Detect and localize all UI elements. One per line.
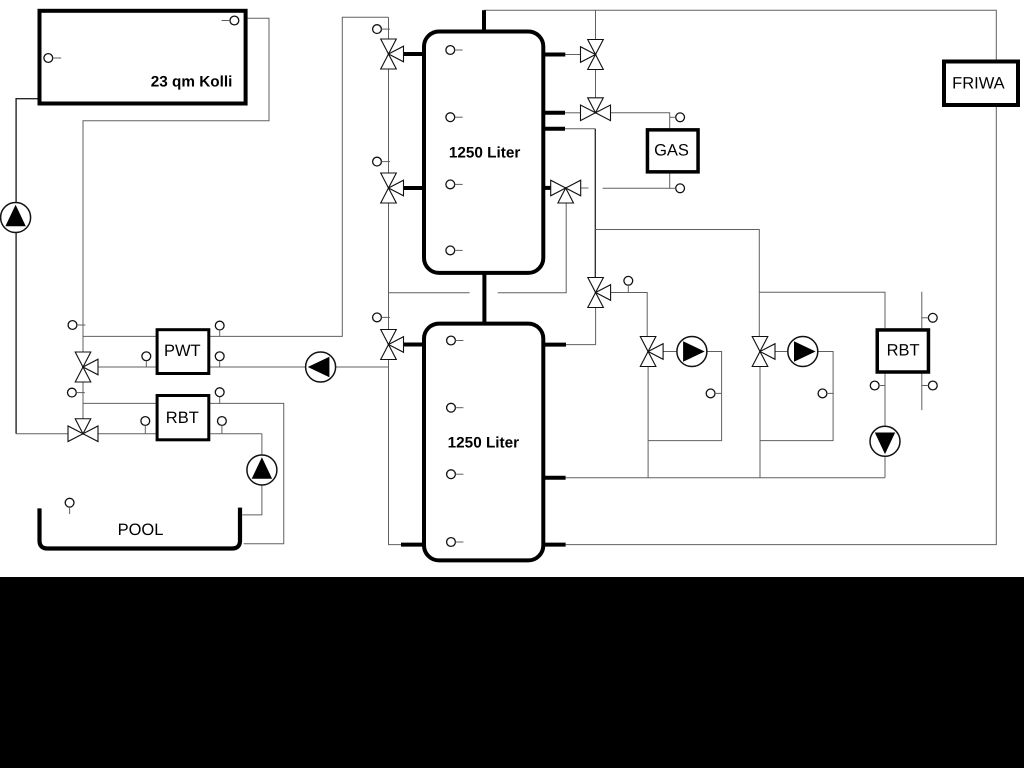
svg-text:1250 Liter: 1250 Liter: [448, 434, 519, 451]
svg-text:POOL: POOL: [118, 521, 164, 539]
svg-text:23 qm Kolli: 23 qm Kolli: [151, 74, 233, 91]
svg-text:1250 Liter: 1250 Liter: [449, 144, 520, 161]
svg-text:FRIWA: FRIWA: [952, 75, 1005, 93]
svg-text:RBT: RBT: [166, 409, 199, 427]
svg-text:PWT: PWT: [164, 342, 201, 360]
svg-text:GAS: GAS: [654, 142, 689, 160]
svg-text:RBT: RBT: [887, 342, 920, 360]
